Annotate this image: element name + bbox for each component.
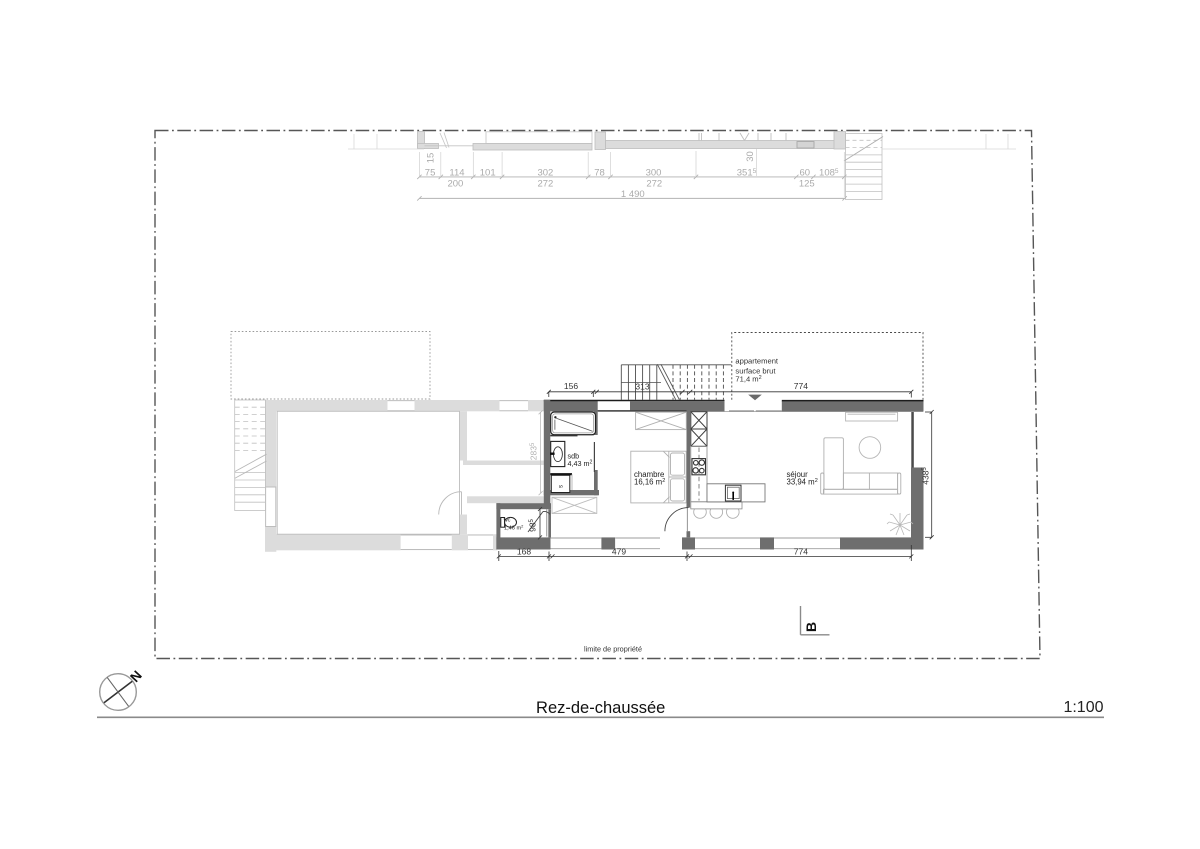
svg-text:15: 15 xyxy=(426,153,437,164)
svg-text:168: 168 xyxy=(517,547,531,557)
svg-text:125: 125 xyxy=(799,179,815,190)
svg-text:Rez-de-chaussée: Rez-de-chaussée xyxy=(536,699,665,717)
svg-text:30: 30 xyxy=(745,151,756,162)
svg-text:60: 60 xyxy=(800,167,811,178)
svg-text:156: 156 xyxy=(564,381,578,391)
svg-text:71,4 m2: 71,4 m2 xyxy=(735,374,761,383)
svg-text:114: 114 xyxy=(449,167,464,178)
svg-text:479: 479 xyxy=(612,547,626,557)
svg-text:300: 300 xyxy=(646,167,662,178)
svg-text:200: 200 xyxy=(447,179,463,190)
svg-text:302: 302 xyxy=(537,167,553,178)
svg-text:s: s xyxy=(559,485,565,488)
svg-text:313: 313 xyxy=(635,382,649,392)
svg-text:1,46 m2: 1,46 m2 xyxy=(504,524,524,532)
svg-text:B: B xyxy=(803,622,819,632)
svg-text:272: 272 xyxy=(537,179,553,190)
svg-text:774: 774 xyxy=(794,547,808,557)
svg-text:wc: wc xyxy=(503,517,511,523)
svg-text:101: 101 xyxy=(480,167,496,178)
svg-text:1:100: 1:100 xyxy=(1063,699,1103,716)
svg-text:272: 272 xyxy=(646,179,662,190)
svg-text:774: 774 xyxy=(794,381,808,391)
svg-text:78: 78 xyxy=(594,167,605,178)
svg-text:16,16 m2: 16,16 m2 xyxy=(634,478,665,487)
svg-text:limite de propriété: limite de propriété xyxy=(584,645,642,654)
svg-text:4,43 m2: 4,43 m2 xyxy=(568,459,593,468)
svg-text:appartement: appartement xyxy=(735,356,779,365)
svg-text:33,94 m2: 33,94 m2 xyxy=(787,478,818,487)
svg-text:75: 75 xyxy=(425,167,436,178)
